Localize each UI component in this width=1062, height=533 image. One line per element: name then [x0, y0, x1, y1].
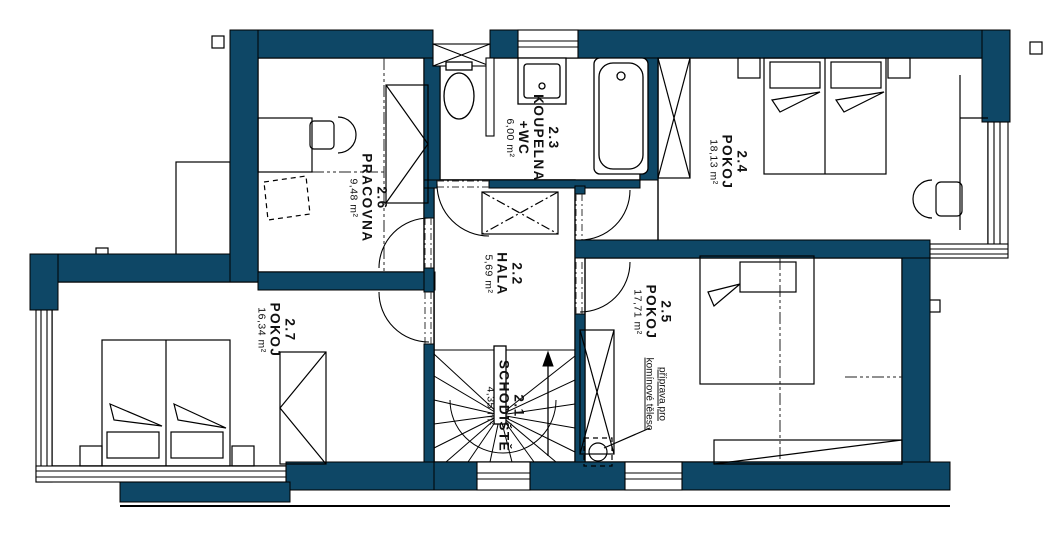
room-area: 5,69 m² — [482, 252, 494, 296]
room-name: POKOJ — [719, 135, 734, 190]
room-number: 2.6 — [374, 153, 389, 242]
room-area: 16,34 m² — [255, 303, 267, 358]
room-label-koupelna: 2.3 KOUPELNA +WC 6,00 m² — [503, 94, 561, 182]
chimney-annotation-line1: příprava pro — [655, 358, 668, 431]
room-name: PRACOVNA — [359, 153, 374, 242]
room-label-pokoj-25: 2.5 POKOJ 17,71 m² — [631, 285, 674, 340]
room-name-2: +WC — [516, 94, 531, 182]
room-number: 2.4 — [734, 135, 749, 190]
wall-parapet-27 — [120, 482, 290, 502]
exterior-lower-roof — [176, 162, 230, 258]
room-label-pokoj-27: 2.7 POKOJ 16,34 m² — [255, 303, 298, 358]
room-area: 17,71 m² — [631, 285, 643, 340]
wall-top — [490, 30, 518, 58]
toilet — [444, 62, 474, 119]
wall-top — [230, 30, 433, 58]
room-number: 2.1 — [511, 360, 526, 452]
room-name: HALA — [494, 252, 509, 296]
wall-left-lower — [30, 254, 58, 310]
floor-plan-drawing — [0, 0, 1062, 533]
window-bottom-stair — [477, 462, 530, 490]
room-label-hala: 2.2 HALA 5,69 m² — [482, 252, 525, 296]
door-arc-pokoj-24 — [580, 190, 630, 240]
room-name: POKOJ — [643, 285, 658, 340]
axis-marker — [212, 36, 224, 48]
floor-plan: 2.1 SCHODIŠTĚ 4,35 m² 2.2 HALA 5,69 m² 2… — [0, 0, 1062, 533]
wc-partition — [486, 58, 494, 136]
floor-pracovna — [258, 58, 424, 272]
wall-26-27 — [258, 272, 435, 290]
room-area: 18,13 m² — [707, 135, 719, 190]
axis-marker — [1030, 42, 1042, 54]
wall-top — [578, 30, 1010, 58]
wall-hala-right — [575, 186, 585, 194]
bathtub — [594, 58, 648, 174]
wall-bottom-27 — [286, 462, 434, 490]
room-area: 6,00 m² — [503, 94, 515, 182]
room-label-pokoj-24: 2.4 POKOJ 18,13 m² — [707, 135, 750, 190]
room-area: 4,35 m² — [484, 360, 496, 452]
room-label-pracovna: 2.6 PRACOVNA 9,48 m² — [347, 153, 390, 242]
room-name: POKOJ — [267, 303, 282, 358]
wall-26-bath — [424, 58, 440, 180]
wall-24-25 — [575, 240, 930, 258]
wall-bath-south — [424, 180, 437, 188]
room-number: 2.7 — [282, 303, 297, 358]
wall-bottom — [434, 462, 477, 490]
wall-right-upper — [982, 30, 1010, 122]
room-number: 2.5 — [658, 285, 673, 340]
room-number: 2.3 — [546, 94, 561, 182]
wall-left-upper — [230, 30, 258, 282]
wall-top-lower-block — [30, 254, 230, 282]
room-number: 2.2 — [509, 252, 524, 296]
chimney-annotation-line2: komínové těleso — [643, 358, 656, 431]
window-bath-top — [518, 30, 578, 58]
room-label-schodiste: 2.1 SCHODIŠTĚ 4,35 m² — [484, 360, 527, 452]
wall-hala-left — [424, 344, 434, 462]
floor-pokoj-27 — [52, 282, 434, 466]
room-name: KOUPELNA — [531, 94, 546, 182]
room-name: SCHODIŠTĚ — [496, 360, 511, 452]
wall-right-lower — [902, 258, 930, 462]
wall-hala-left — [424, 268, 434, 292]
wall-bottom — [682, 462, 950, 490]
chimney-annotation: příprava pro komínové těleso — [643, 358, 668, 431]
window-bottom-25 — [625, 462, 682, 490]
room-area: 9,48 m² — [347, 153, 359, 242]
